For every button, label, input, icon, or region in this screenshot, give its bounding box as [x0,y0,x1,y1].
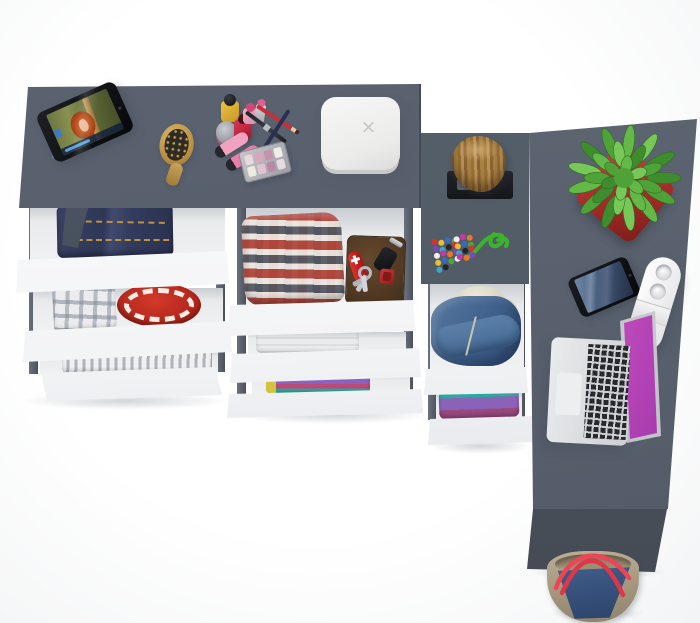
video-progress-bar [64,139,91,153]
socket [648,282,668,302]
box-x-mark: × [361,118,377,137]
scene: × [0,0,700,623]
eyeshadow-pan [276,158,286,170]
red-keychain-tag [379,268,394,284]
eyeshadow-pan [266,161,276,173]
bag-straps [545,540,645,602]
eyeshadow-pan [263,149,273,161]
eyeshadow-pan [244,154,254,166]
movie-character-hair [67,107,100,142]
beads-keychain [424,218,514,280]
plaid-shorts [241,211,346,306]
movie-wood-pole [82,97,103,140]
eyeshadow-pan [254,152,264,164]
video-thumbnail [53,128,62,138]
succulent-plant [562,118,688,240]
eyeshadow-pan [257,163,267,175]
laptop-trackpad [555,372,582,415]
phone-camera-icon [628,273,632,277]
red-patterned-garment [117,283,201,327]
socket [654,262,674,282]
tablet-camera-icon [118,106,122,110]
eyeshadow-pan [247,166,257,178]
plaid-shirt [52,284,117,331]
hairbrush-handle [165,161,185,187]
green-cord [470,234,507,256]
jeans-stitching [67,239,169,241]
eyeshadow-pan [273,147,283,159]
white-storage-box: × [321,97,400,170]
laptop-keyboard [584,344,631,440]
keychain-center [383,272,392,282]
white-pattern-ring [124,288,194,322]
movie-character-face [78,118,91,133]
